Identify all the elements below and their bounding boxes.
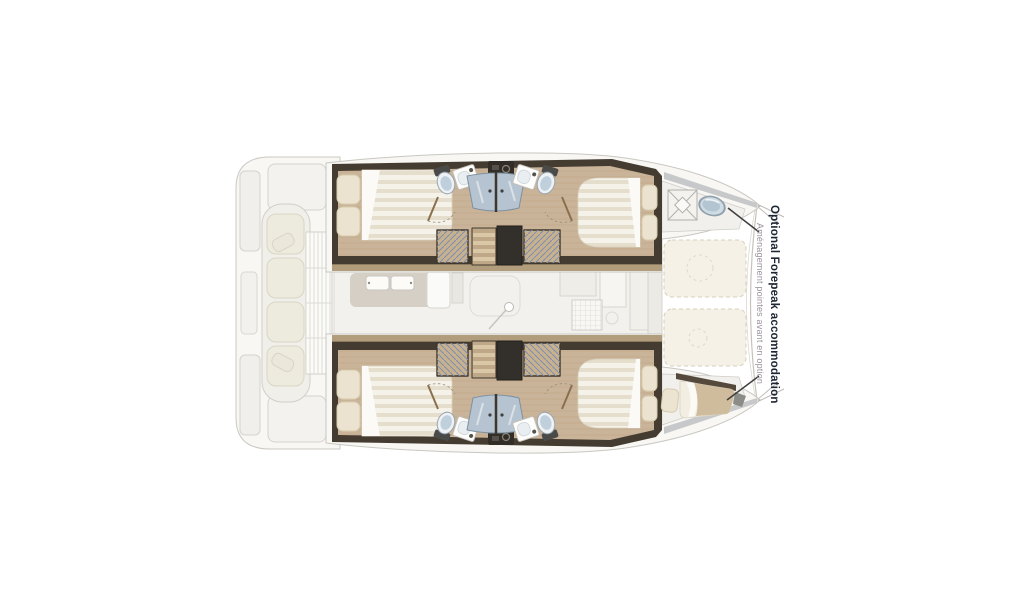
forepeak-hatch <box>668 190 697 220</box>
trampoline-bottom <box>664 309 746 366</box>
pillow <box>642 185 657 210</box>
berth-pillow <box>661 388 679 413</box>
forepeak-annotation: Optional Forepeak accommodation Aménagem… <box>755 174 780 434</box>
transom-platform <box>241 272 257 334</box>
trampoline-top <box>664 240 746 297</box>
catamaran-floor-plan <box>0 0 1024 600</box>
companionway-opening <box>497 226 522 265</box>
salon-sofa <box>427 271 450 308</box>
companionway-row <box>437 226 560 265</box>
annotation-label-fr: Aménagement pointes avant en option <box>755 174 765 434</box>
annotation-label-en: Optional Forepeak accommodation <box>768 174 780 434</box>
companionway-steps <box>472 228 496 265</box>
bridgedeck-salon <box>334 271 658 335</box>
stern-cockpit <box>236 157 340 449</box>
transom-step-top <box>240 171 260 251</box>
pillow <box>337 175 360 204</box>
floor-plan-canvas: Optional Forepeak accommodation Aménagem… <box>0 0 1024 600</box>
galley-sink-grid <box>572 300 602 330</box>
aft-locker-top <box>268 164 326 210</box>
pillow <box>642 215 657 240</box>
pillow <box>337 207 360 236</box>
transom-step-bottom <box>240 355 260 435</box>
aft-locker-bottom <box>268 396 326 442</box>
salon-sofa-back <box>452 273 463 303</box>
